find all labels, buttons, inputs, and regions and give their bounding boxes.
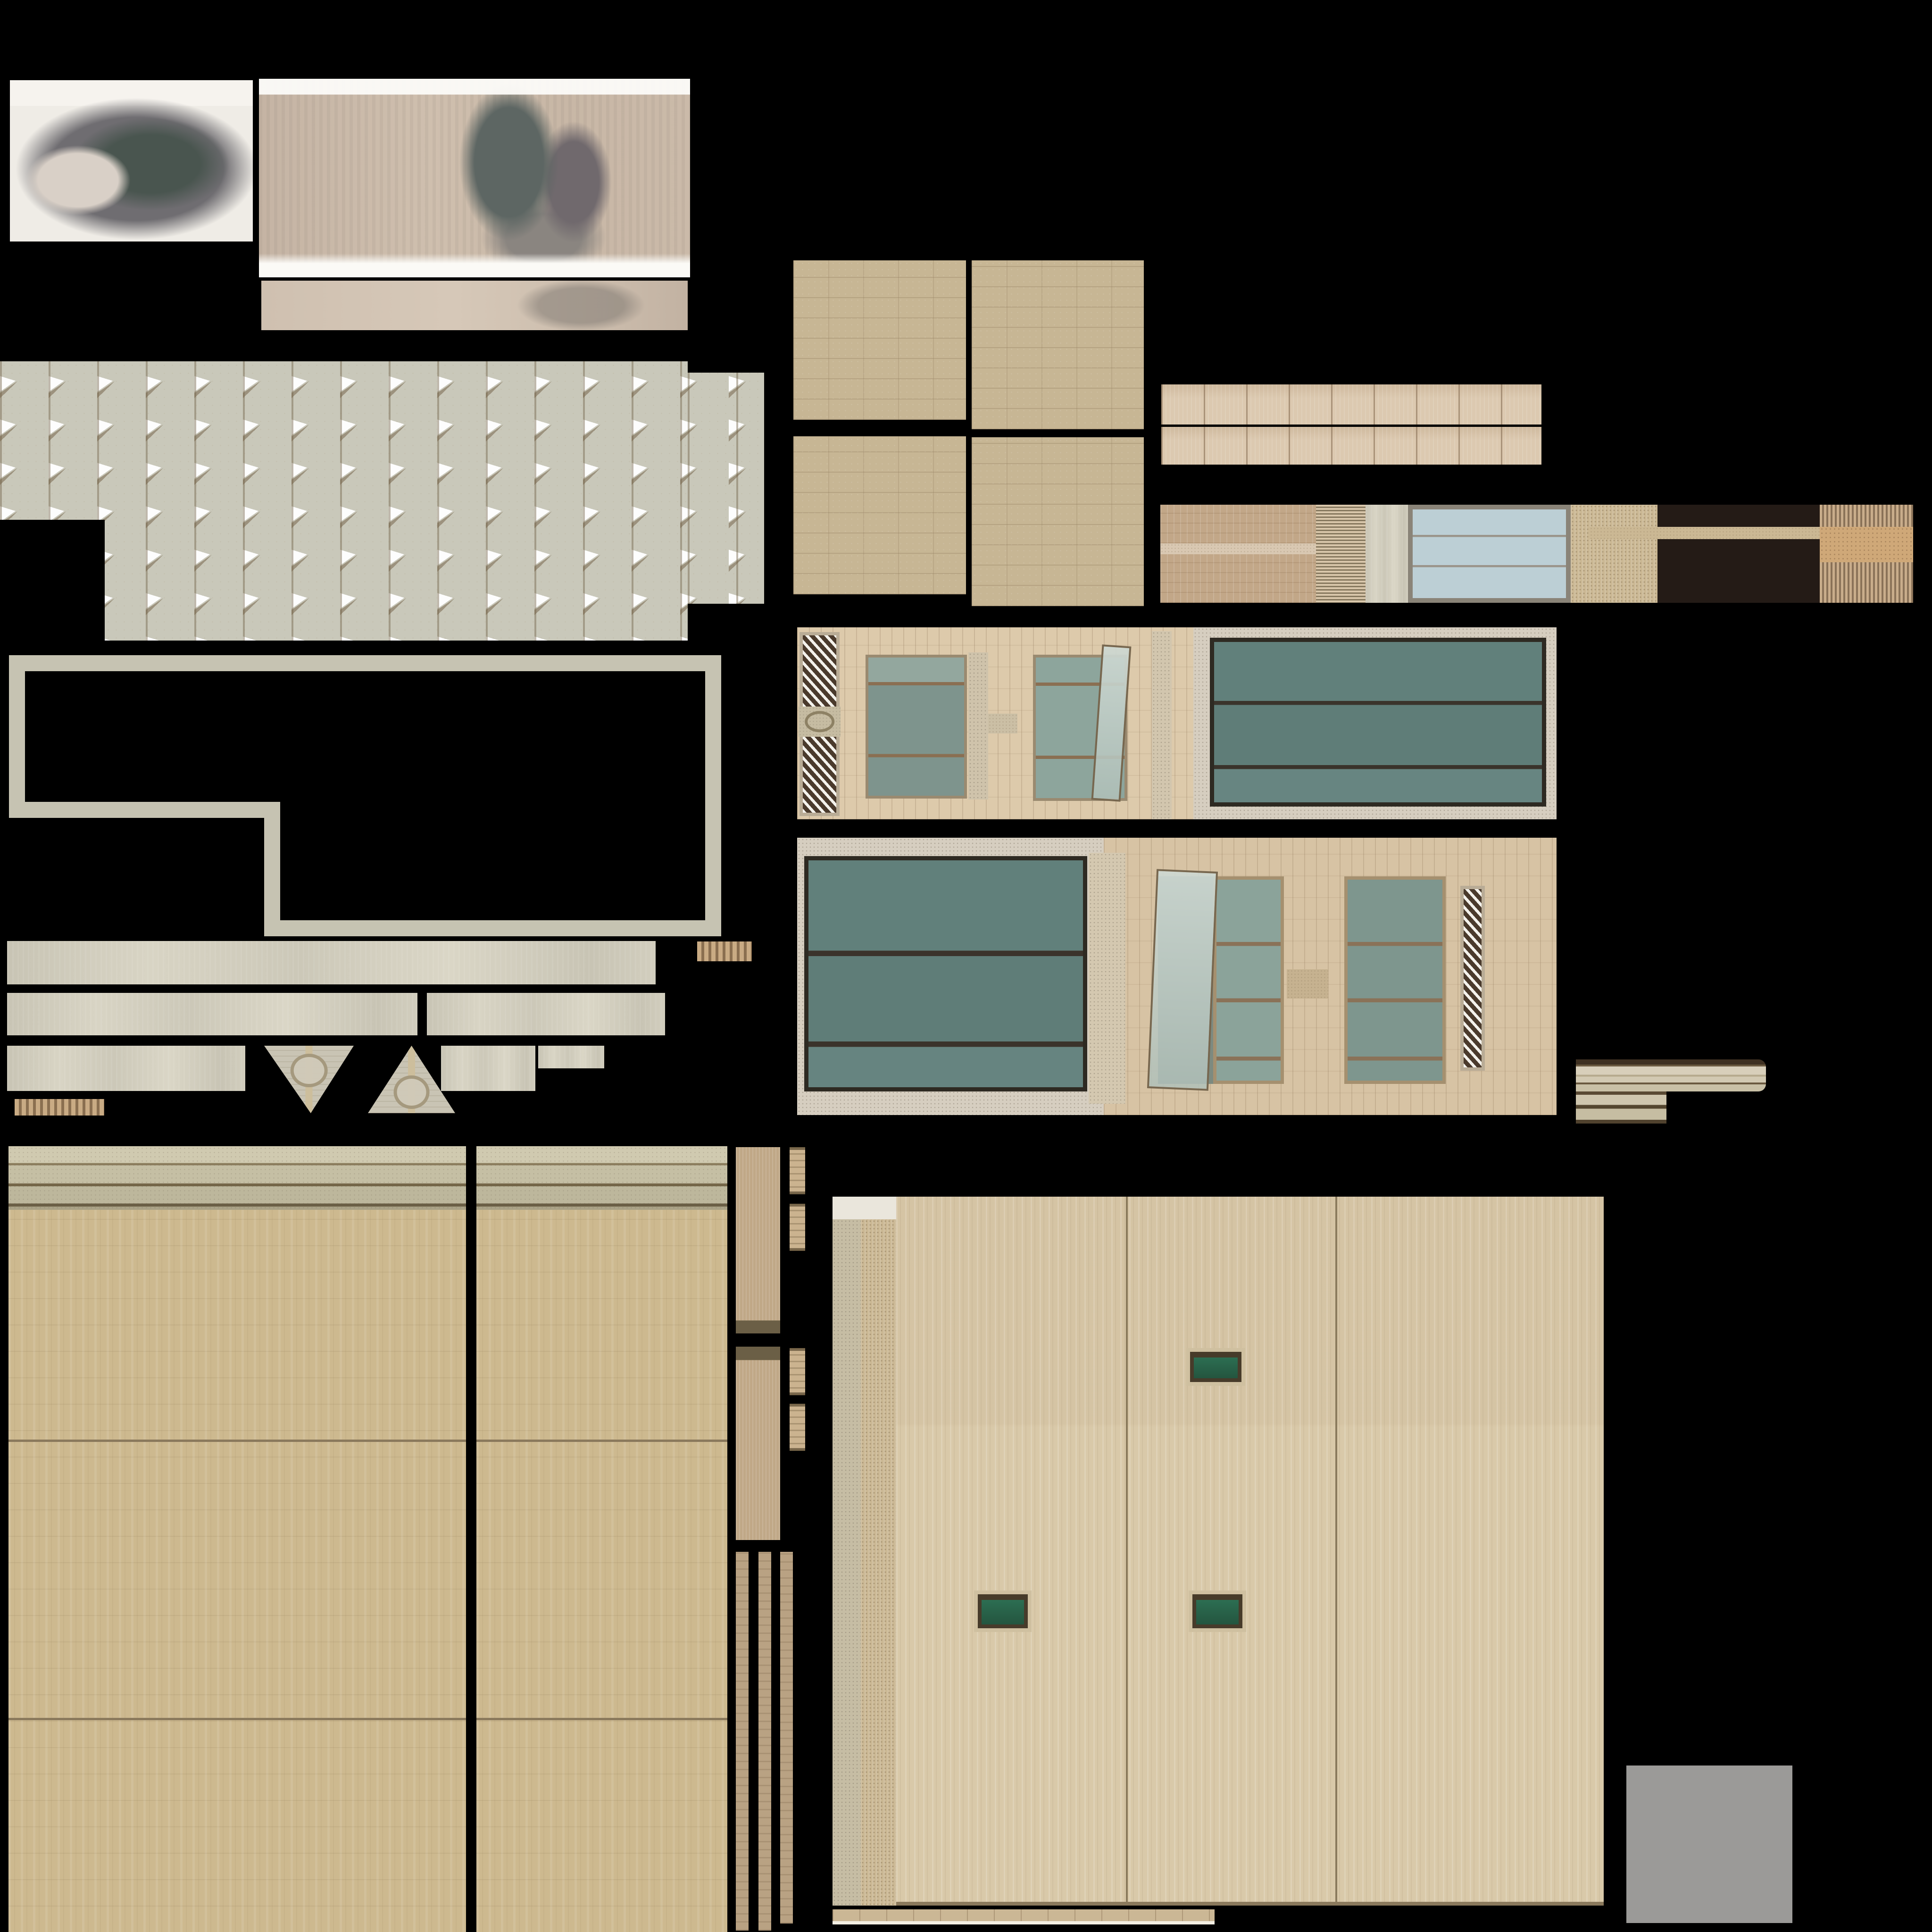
light-bar [1366, 505, 1408, 603]
tile-square-1 [793, 260, 966, 420]
curtainwall-teal-2 [804, 856, 1087, 1091]
molding-small-2 [1621, 1091, 1666, 1124]
photo-texture-2 [259, 79, 690, 277]
gray-square [1626, 1765, 1792, 1923]
garagewall-column-2 [861, 1219, 896, 1906]
garagewall-main [896, 1197, 1604, 1906]
garagewall-bottom-edge [896, 1902, 1604, 1906]
bigwall-panel-2 [476, 1146, 727, 1932]
louver-column [1316, 505, 1366, 603]
eave-strip-b1 [7, 993, 417, 1035]
texture-atlas-canvas [0, 0, 1932, 1932]
window-c [1213, 876, 1284, 1084]
eave-strip-c1 [7, 1046, 245, 1091]
bigwall-seam-1b [8, 1718, 466, 1720]
vstrip-1b [736, 1347, 780, 1540]
tile-square-4 [972, 437, 1144, 606]
bigwall-seam-1a [8, 1440, 466, 1442]
garagewall-seam-2 [1335, 1197, 1337, 1906]
pilaster-2 [1089, 853, 1125, 1104]
eave-strip-c3 [538, 1046, 604, 1068]
dark-block [1657, 505, 1820, 603]
shutter-zebra-2 [1460, 886, 1485, 1071]
open-pane-c [1147, 869, 1218, 1091]
brick-light-band [1160, 543, 1316, 554]
vstrip-1a [736, 1147, 780, 1333]
molding-small-1 [1576, 1091, 1621, 1124]
window-a [866, 655, 967, 799]
rough-block [1820, 527, 1913, 562]
vstrip-2b [790, 1204, 805, 1251]
bigwall-cornice-2 [476, 1146, 727, 1210]
bracket-1 [988, 714, 1017, 733]
garagewall-seam-1 [1126, 1197, 1128, 1906]
photo-texture-strip [261, 281, 688, 330]
thin-line-2 [758, 1552, 771, 1931]
green-window-3 [1189, 1591, 1246, 1632]
bigwall-cornice-1 [8, 1146, 466, 1210]
dark-block-band [1590, 527, 1820, 539]
wall-outline-path [17, 663, 713, 928]
molding-long [1576, 1059, 1766, 1091]
stone-pillar [1571, 505, 1657, 603]
vstrip-2d [790, 1404, 805, 1451]
roof-shingles-right [688, 373, 764, 604]
green-window-2 [974, 1591, 1032, 1632]
roof-shingles-mid [105, 361, 688, 641]
vstrip-2c [790, 1348, 805, 1395]
garagewall-column-1 [833, 1219, 861, 1906]
tile-square-3 [793, 436, 966, 594]
bigwall-seam-2b [476, 1718, 727, 1720]
thin-line-1 [736, 1552, 749, 1931]
green-window-1 [1186, 1348, 1245, 1386]
striped-chip-a [697, 941, 752, 961]
shutter-ornament-1 [799, 707, 841, 737]
divider-column-1 [1152, 631, 1172, 819]
bigwall-seam-2a [476, 1440, 727, 1442]
bottom-strip [833, 1909, 1215, 1924]
bigwall-panel-1 [8, 1146, 466, 1932]
eave-strip-b2 [427, 993, 665, 1035]
curtainwall-teal-1 [1210, 638, 1546, 807]
photo-texture-1 [10, 80, 253, 241]
garagewall-white-cap [833, 1197, 896, 1219]
vstrip-2a [790, 1147, 805, 1194]
window-blue [1408, 505, 1571, 603]
gable-triangle-down [264, 1046, 354, 1113]
thin-line-3 [780, 1552, 793, 1924]
tile-square-2 [972, 260, 1144, 429]
bracket-2 [1287, 969, 1328, 999]
window-d [1344, 876, 1446, 1084]
striped-chip-b [15, 1099, 104, 1116]
eave-strip-c2 [441, 1046, 535, 1091]
plank-strip-1 [1161, 384, 1541, 425]
eave-strip-a [7, 941, 656, 984]
plank-strip-2 [1161, 427, 1541, 465]
corrugated-bottom [1820, 562, 1913, 603]
pilaster-1 [968, 652, 988, 799]
corrugated-top [1820, 505, 1913, 527]
